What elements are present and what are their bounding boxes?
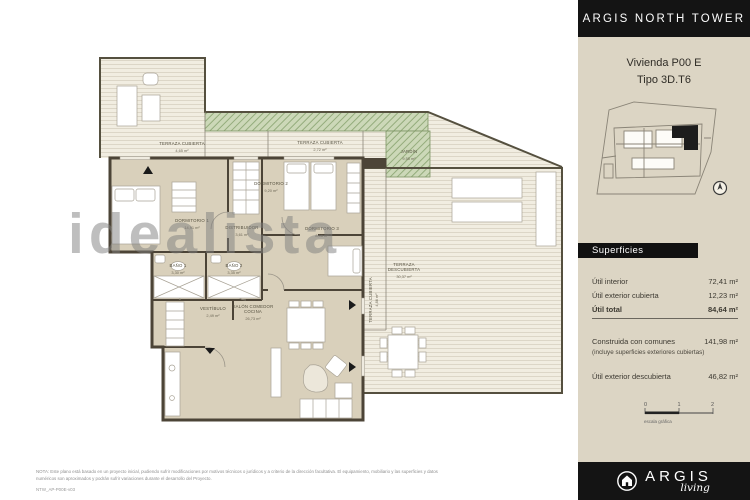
- row-value: 72,41 m²: [708, 277, 738, 286]
- row-label: Útil exterior cubierta: [592, 291, 659, 300]
- room-area: 3,30 m²: [171, 270, 185, 275]
- brand-tagline: living: [645, 482, 712, 494]
- row-value: 12,23 m²: [708, 291, 738, 300]
- scale-caption: escala gráfica: [644, 419, 714, 424]
- building-title: ARGIS NORTH TOWER: [578, 0, 750, 37]
- row-sublabel: (incluye superficies exteriores cubierta…: [592, 349, 738, 356]
- info-sidebar: ARGIS NORTH TOWER Vivienda P00 E Tipo 3D…: [578, 0, 750, 500]
- floor-plan-sheet: TERRAZA CUBIERTA 4,65 m² TERRAZA CUBIERT…: [0, 0, 750, 500]
- room-area: 4,65 m²: [175, 148, 189, 153]
- room-label: TERRAZA CUBIERTA: [159, 141, 205, 146]
- compass-icon: [714, 182, 727, 195]
- room-area: 9,55 m²: [402, 156, 416, 161]
- plan-code: NTW_AP-P00E-v03: [36, 487, 75, 492]
- table-row: Construida con comunes 141,98 m²: [592, 337, 738, 346]
- room-label: COCINA: [244, 309, 262, 314]
- room-area: 30,37 m²: [396, 274, 412, 279]
- idealista-watermark: idealista: [68, 206, 341, 263]
- room-area: 26,73 m²: [245, 316, 261, 321]
- superficies-header: Superficies: [578, 243, 698, 258]
- row-label: Útil exterior descubierta: [592, 372, 671, 381]
- unit-line2: Tipo 3D.T6: [578, 72, 750, 89]
- table-row: Útil interior 72,41 m²: [592, 277, 738, 286]
- row-label: Útil interior: [592, 277, 628, 286]
- row-value: 84,64 m²: [708, 305, 738, 314]
- room-label: DESCUBIERTA: [388, 267, 420, 272]
- table-row: Útil exterior cubierta 12,23 m²: [592, 291, 738, 300]
- disclaimer-line2: numéricos son aproximados y podrán sufri…: [36, 476, 438, 483]
- brand-wordmark: ARGIS living: [645, 469, 712, 494]
- graphic-scale: 0 1 2 escala gráfica: [644, 402, 714, 424]
- unit-title: Vivienda P00 E Tipo 3D.T6: [578, 55, 750, 88]
- room-area: 2,72 m²: [313, 147, 327, 152]
- room-area: 2,49 m²: [206, 313, 220, 318]
- disclaimer-note: NOTA: Este plano está basado en un proye…: [36, 469, 438, 482]
- room-area: 3,35 m²: [227, 270, 241, 275]
- brand-footer: ARGIS living: [578, 462, 750, 500]
- site-plan-map: [594, 98, 730, 200]
- table-row-total: Útil total 84,64 m²: [592, 305, 738, 319]
- row-label: Construida con comunes: [592, 337, 675, 346]
- scale-bar: [644, 408, 714, 416]
- superficies-table: Útil interior 72,41 m² Útil exterior cub…: [592, 277, 738, 386]
- table-row: Útil exterior descubierta 46,82 m²: [592, 372, 738, 381]
- row-label: Útil total: [592, 305, 622, 314]
- row-value: 141,98 m²: [704, 337, 738, 346]
- room-label: VESTÍBULO: [200, 306, 226, 311]
- room-label: DORMITORIO 2: [254, 181, 288, 186]
- room-label: TERRAZA CUBIERTA: [368, 277, 373, 323]
- room-label: TERRAZA CUBIERTA: [297, 140, 343, 145]
- wall-corner: [362, 158, 387, 168]
- argis-logo-icon: [616, 470, 638, 492]
- room-area: 9,20 m²: [264, 188, 278, 193]
- disclaimer-line1: NOTA: Este plano está basado en un proye…: [36, 469, 438, 476]
- row-value: 46,82 m²: [708, 372, 738, 381]
- room-label: JARDÍN: [401, 149, 418, 154]
- room-area: 4,86 m²: [374, 293, 379, 307]
- unit-line1: Vivienda P00 E: [578, 55, 750, 72]
